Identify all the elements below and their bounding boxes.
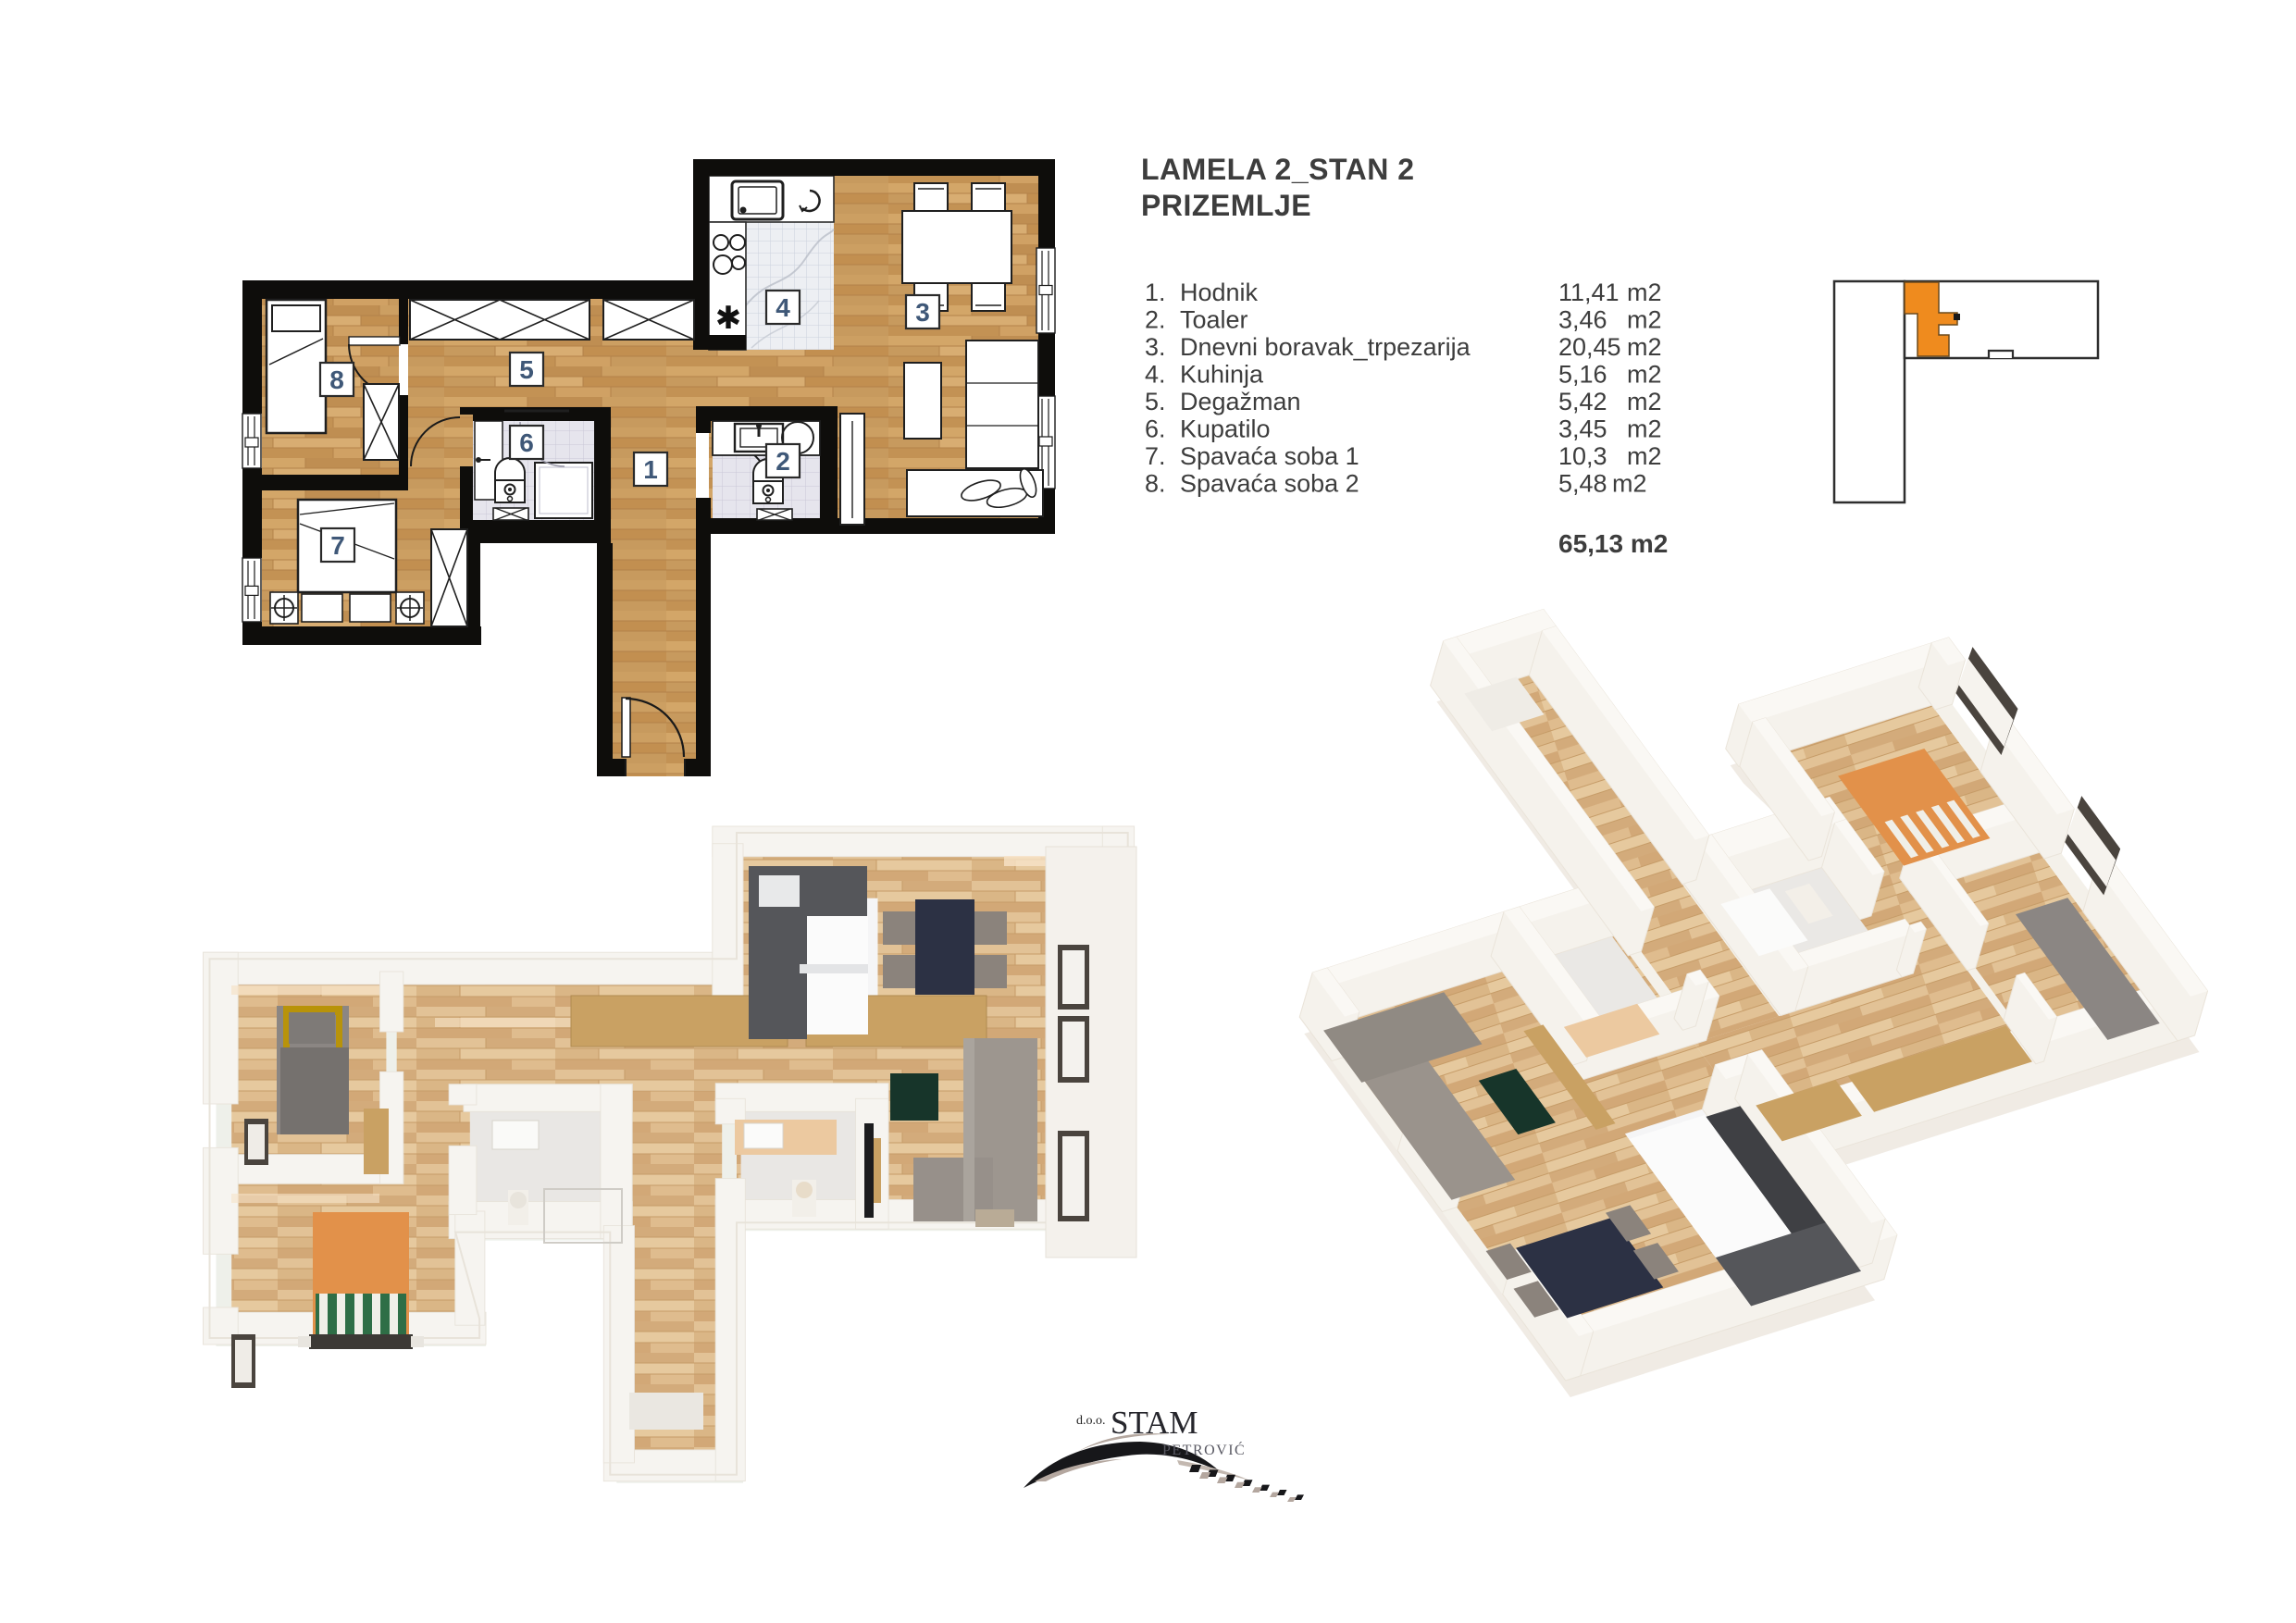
svg-text:10,3: 10,3 <box>1558 442 1607 470</box>
svg-text:Dnevni boravak_trpezarija: Dnevni boravak_trpezarija <box>1180 333 1471 361</box>
svg-text:STAM: STAM <box>1111 1405 1198 1441</box>
svg-text:LAMELA 2_STAN 2: LAMELA 2_STAN 2 <box>1141 153 1415 186</box>
svg-text:5.: 5. <box>1145 388 1166 415</box>
svg-text:Spavaća soba 1: Spavaća soba 1 <box>1180 442 1359 470</box>
svg-text:2: 2 <box>776 447 790 476</box>
svg-text:1.: 1. <box>1145 279 1166 306</box>
svg-text:m2: m2 <box>1627 388 1662 415</box>
svg-text:20,45: 20,45 <box>1558 333 1621 361</box>
svg-text:m2: m2 <box>1627 361 1662 389</box>
svg-text:m2: m2 <box>1627 415 1662 443</box>
svg-text:m2: m2 <box>1627 442 1662 470</box>
svg-text:PETROVIĆ: PETROVIĆ <box>1162 1441 1246 1458</box>
svg-text:5,42: 5,42 <box>1558 388 1607 415</box>
svg-text:7: 7 <box>330 531 345 560</box>
svg-text:Hodnik: Hodnik <box>1180 279 1259 306</box>
svg-text:8.: 8. <box>1145 470 1166 498</box>
svg-text:11,41: 11,41 <box>1558 279 1620 306</box>
svg-text:4: 4 <box>776 293 790 322</box>
svg-text:3.: 3. <box>1145 333 1166 361</box>
svg-text:5,16: 5,16 <box>1558 361 1607 389</box>
svg-text:Kuhinja: Kuhinja <box>1180 361 1264 389</box>
svg-text:m2: m2 <box>1627 306 1662 334</box>
svg-text:Toaler: Toaler <box>1180 306 1248 334</box>
svg-text:8: 8 <box>329 365 344 394</box>
svg-text:m2: m2 <box>1612 470 1647 498</box>
svg-text:5: 5 <box>519 355 534 384</box>
svg-text:m2: m2 <box>1627 279 1662 306</box>
svg-text:3,45: 3,45 <box>1558 415 1607 443</box>
svg-text:3: 3 <box>915 298 930 327</box>
svg-text:6.: 6. <box>1145 415 1166 443</box>
svg-text:Spavaća soba 2: Spavaća soba 2 <box>1180 470 1359 498</box>
svg-text:m2: m2 <box>1627 333 1662 361</box>
svg-text:3,46: 3,46 <box>1558 306 1607 334</box>
svg-text:Degažman: Degažman <box>1180 388 1301 415</box>
svg-text:4.: 4. <box>1145 361 1166 389</box>
svg-text:7.: 7. <box>1145 442 1166 470</box>
svg-text:Kupatilo: Kupatilo <box>1180 415 1271 443</box>
svg-text:2.: 2. <box>1145 306 1166 334</box>
svg-text:6: 6 <box>519 428 534 457</box>
svg-text:PRIZEMLJE: PRIZEMLJE <box>1141 189 1311 222</box>
svg-text:✱: ✱ <box>715 301 742 336</box>
svg-text:d.o.o.: d.o.o. <box>1076 1414 1106 1428</box>
svg-text:5,48: 5,48 <box>1558 470 1607 498</box>
svg-text:65,13 m2: 65,13 m2 <box>1558 529 1668 558</box>
svg-text:1: 1 <box>643 455 658 484</box>
